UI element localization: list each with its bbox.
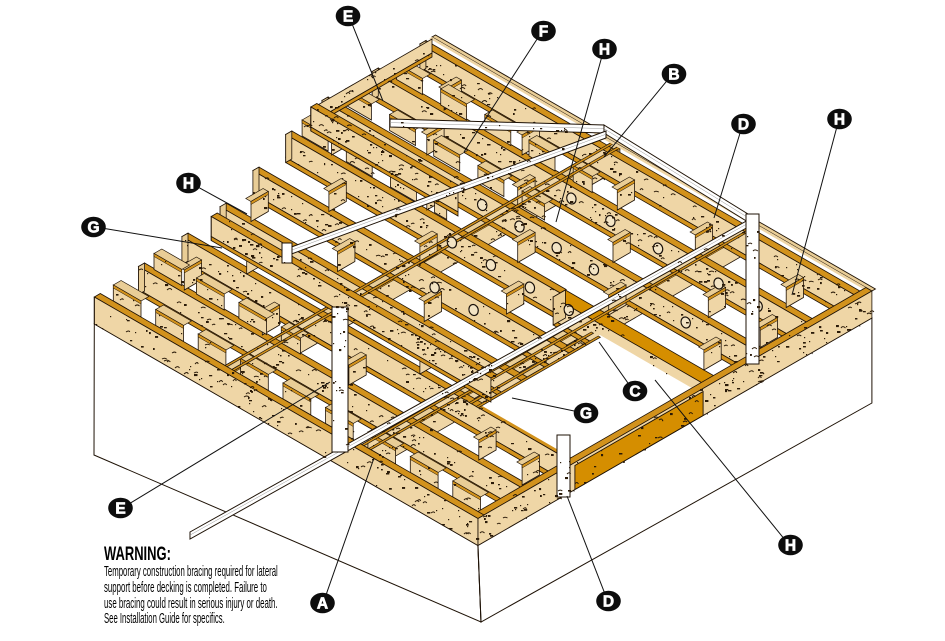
svg-text:use bracing could result in se: use bracing could result in serious inju… [104,596,278,612]
svg-text:support before decking is comp: support before decking is completed. Fai… [104,580,267,596]
svg-text:E: E [115,501,125,518]
svg-text:Temporary construction bracing: Temporary construction bracing required … [104,564,278,580]
svg-text:F: F [539,24,548,41]
svg-text:H: H [785,538,796,555]
svg-text:G: G [580,406,592,423]
svg-text:D: D [738,117,749,134]
svg-text:E: E [343,9,353,26]
svg-text:D: D [603,594,614,611]
svg-text:H: H [183,176,194,193]
svg-text:See Installation Guide for spe: See Installation Guide for specifics. [104,611,225,627]
svg-text:B: B [668,67,679,84]
svg-text:H: H [834,112,845,129]
svg-text:C: C [629,384,640,401]
svg-text:A: A [317,596,328,613]
svg-text:G: G [87,220,99,237]
svg-text:WARNING:: WARNING: [104,544,171,565]
svg-text:H: H [599,42,610,59]
